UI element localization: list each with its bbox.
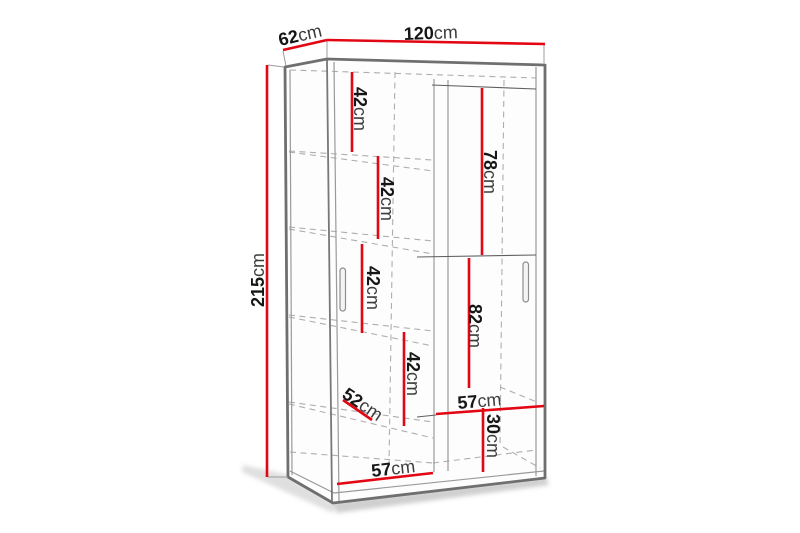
dimension-label-shelf-gap-3: 42cm <box>363 266 383 310</box>
dimension-label-height: 215cm <box>248 253 268 307</box>
wardrobe-body <box>285 59 545 503</box>
dimension-label-right-top-section: 78cm <box>480 150 500 194</box>
diagram-canvas: 62cm 120cm 215cm 42cm 42cm 42cm 42cm 78c… <box>0 0 800 533</box>
height-tick-top <box>268 65 284 67</box>
left-door-handle <box>340 268 346 311</box>
dimension-label-shelf-gap-1: 42cm <box>350 87 370 131</box>
dimension-label-shelf-gap-2: 42cm <box>377 177 397 221</box>
right-door-handle <box>523 262 529 302</box>
dimension-label-right-bottom-section: 30cm <box>483 414 503 458</box>
dimension-label-width: 120cm <box>403 22 458 44</box>
depth-tick-left <box>283 51 286 66</box>
wardrobe-dimension-diagram: 62cm 120cm 215cm 42cm 42cm 42cm 42cm 78c… <box>0 0 800 533</box>
dimension-label-right-middle-section: 82cm <box>465 304 485 348</box>
dimension-label-shelf-gap-4: 42cm <box>403 352 423 396</box>
dimension-label-right-section-width: 57cm <box>457 389 503 413</box>
